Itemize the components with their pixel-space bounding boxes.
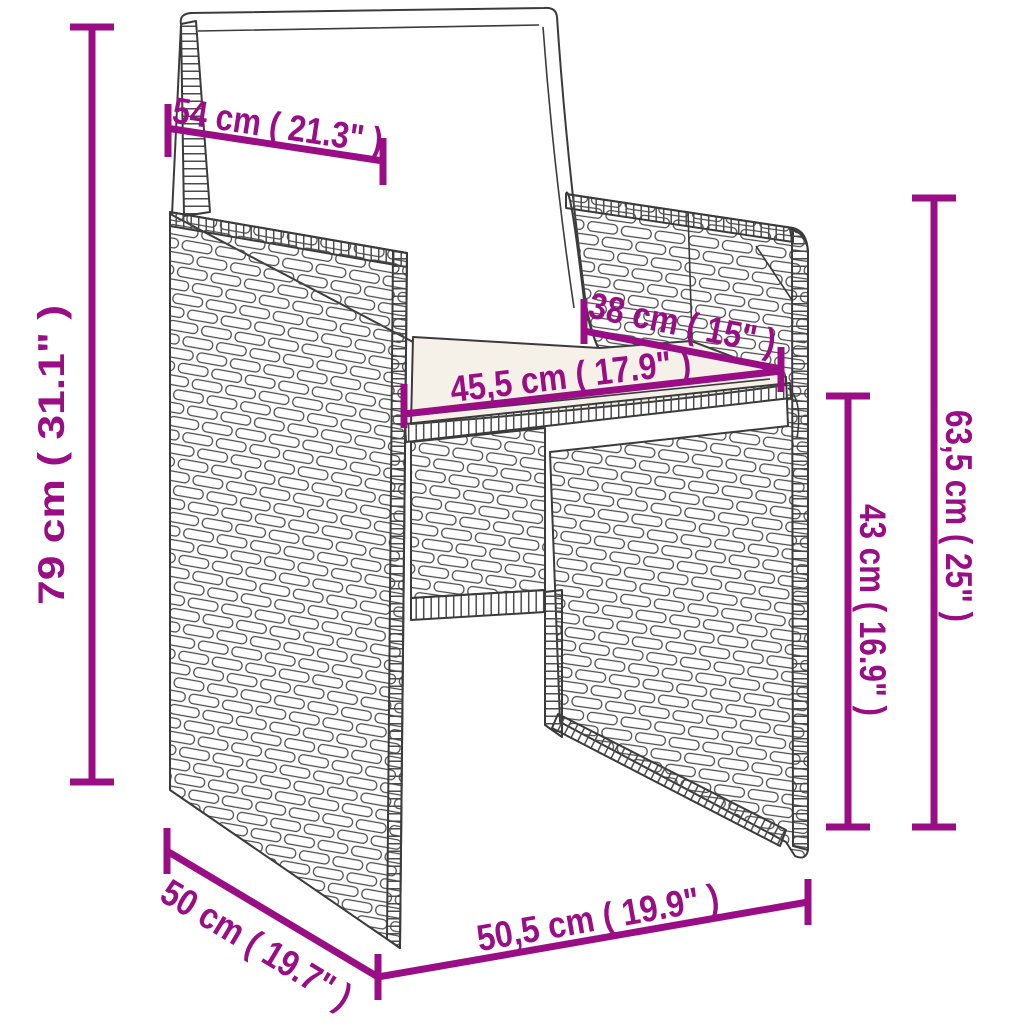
dimension-overall-height: 79 cm ( 31.1" ) (31, 27, 114, 782)
left-side-panel (170, 212, 407, 948)
dimension-overall-width: 50,5 cm ( 19.9" ) (378, 876, 808, 1000)
dimension-label: 79 cm ( 31.1" ) (31, 305, 72, 605)
dimension-seat-height: 43 cm ( 16.9" ) (826, 396, 893, 827)
dimension-armrest-height: 63,5 cm ( 25" ) (912, 198, 979, 827)
chair-line-drawing (170, 8, 808, 948)
right-side-panel (550, 193, 808, 858)
dimension-label: 63,5 cm ( 25" ) (938, 410, 979, 622)
dimension-line (70, 27, 114, 782)
right-panel-edge-roll (790, 229, 808, 850)
apron-wicker (411, 428, 545, 598)
right-panel-wicker (550, 193, 808, 858)
dimension-label: 43 cm ( 16.9" ) (852, 504, 893, 716)
dimension-label: 50,5 cm ( 19.9" ) (474, 876, 722, 959)
product-dimension-diagram: 54 cm ( 21.3" ) 79 cm ( 31.1" ) 38 cm ( … (0, 0, 1024, 1024)
diagram-canvas: 54 cm ( 21.3" ) 79 cm ( 31.1" ) 38 cm ( … (0, 0, 1024, 1024)
left-panel-wicker (170, 212, 407, 948)
